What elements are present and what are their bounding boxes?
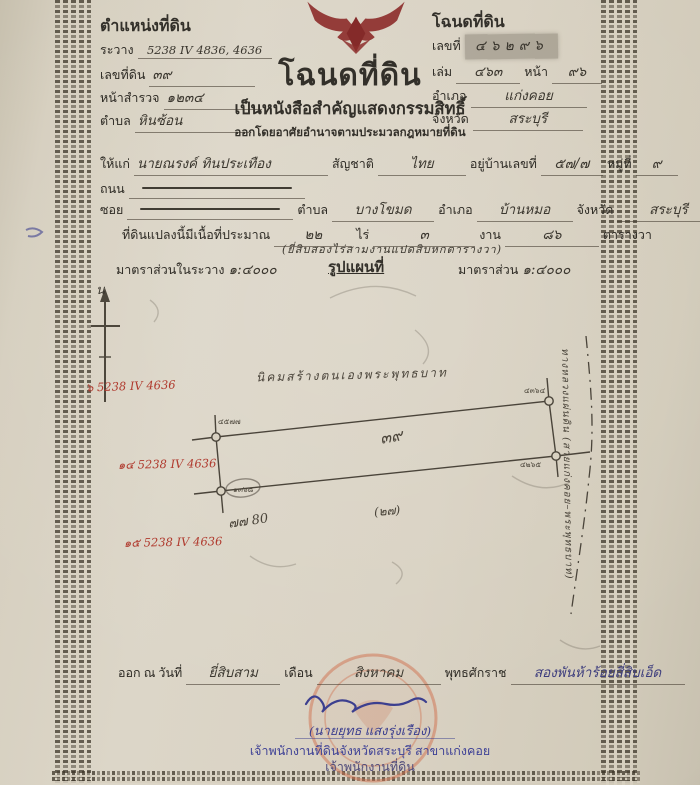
signer-title-line2: เจ้าพนักงานที่ดิน [0, 757, 700, 777]
land-deed-photo: ตำแหน่งที่ดิน ระวาง 5238 IV 4836, 4636 เ… [0, 0, 700, 785]
signature-stroke [0, 0, 700, 785]
signature-underline [295, 738, 455, 739]
